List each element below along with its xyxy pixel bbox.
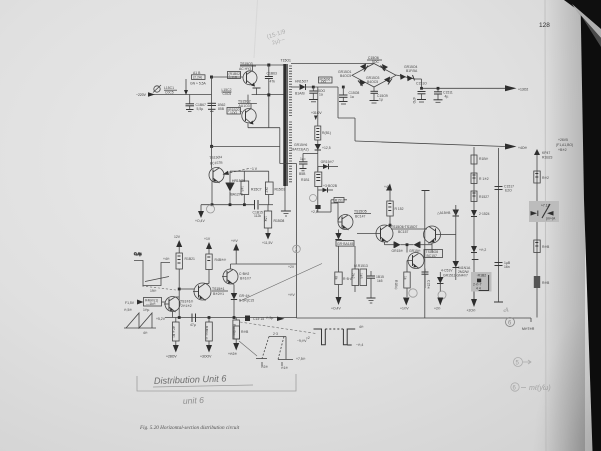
svg-text:C15℗: C15℗ — [427, 280, 431, 290]
svg-text:+2℗: +2℗ — [434, 307, 441, 311]
svg-text:R1B℗: R1B℗ — [394, 280, 398, 291]
svg-text:+1V: +1V — [204, 237, 211, 241]
svg-text:R1B1: R1B1 — [301, 178, 310, 182]
svg-text:L15C1: L15C1 — [164, 86, 174, 90]
svg-text:C·B℗2: C·B℗2 — [239, 272, 249, 276]
svg-text:L11B: L11B — [230, 75, 238, 79]
svg-text:+3OOV: +3OOV — [200, 355, 212, 359]
svg-text:TS1℗1℗: TS1℗1℗ — [180, 300, 194, 304]
svg-text:−9,℗V: −9,℗V — [297, 339, 307, 343]
svg-text:1OO: 1OO — [230, 111, 238, 115]
svg-text:MAT23(A2): MAT23(A2) — [292, 148, 309, 152]
svg-text:+13O2: +13O2 — [518, 88, 528, 92]
svg-text:R 152: R 152 — [395, 207, 404, 211]
svg-text:+28OV: +28OV — [166, 355, 177, 359]
svg-text:C0C5: C0C5 — [223, 92, 232, 96]
svg-text:AC HY3: AC HY3 — [239, 67, 251, 71]
svg-text:2M2/W: 2M2/W — [458, 270, 470, 274]
svg-text:+1℗V: +1℗V — [400, 307, 409, 311]
svg-text:TS15O5: TS15O5 — [354, 210, 367, 214]
svg-text:+3·BO2B: +3·BO2B — [323, 184, 338, 188]
svg-text:R4B℗℗: R4B℗℗ — [215, 258, 227, 262]
svg-text:8k: 8k — [334, 276, 338, 280]
svg-text:+5,2V: +5,2V — [156, 317, 166, 321]
svg-text:2k2: 2k2 — [351, 273, 355, 279]
svg-text:5,5µ: 5,5µ — [197, 107, 204, 111]
svg-text:+℗V: +℗V — [231, 239, 238, 243]
svg-text:B4OC5: B4OC5 — [367, 80, 378, 84]
svg-text:+O,4V: +O,4V — [331, 307, 341, 311]
svg-text:R1527: R1527 — [479, 195, 489, 199]
svg-text:R15O3: R15O3 — [275, 188, 286, 192]
svg-text:(F1,A1,BO): (F1,A1,BO) — [556, 143, 573, 147]
svg-text:BC147: BC147 — [355, 215, 365, 219]
svg-text:2·3: 2·3 — [273, 332, 278, 336]
svg-text:GR15℗: GR15℗ — [392, 249, 404, 253]
svg-text:1k: 1k — [403, 276, 407, 280]
svg-text:+12,5: +12,5 — [322, 146, 331, 150]
svg-text:O,4µ: O,4µ — [134, 252, 141, 256]
svg-text:+31OV: +31OV — [311, 111, 322, 115]
svg-text:19℗: 19℗ — [150, 289, 157, 293]
svg-text:4·C51V: 4·C51V — [441, 269, 453, 273]
svg-text:2℗1℗2: 2℗1℗2 — [181, 304, 192, 308]
svg-text:128: 128 — [539, 22, 550, 29]
svg-text:−℗,4: −℗,4 — [356, 343, 363, 347]
svg-text:+℗,2: +℗,2 — [479, 248, 486, 252]
svg-text:5OC: 5OC — [372, 60, 380, 64]
svg-text:16n: 16n — [504, 265, 510, 269]
svg-text:+B℗2: +B℗2 — [558, 148, 567, 152]
svg-text:47µ: 47µ — [190, 323, 196, 327]
svg-text:4 4: 4 4 — [476, 287, 481, 291]
svg-text:1k5: 1k5 — [377, 279, 383, 283]
svg-text:R℗B: R℗B — [542, 281, 550, 285]
svg-text:B4OC5: B4OC5 — [340, 74, 351, 78]
svg-text:1k5: 1k5 — [240, 186, 244, 192]
svg-text:C151O: C151O — [416, 82, 427, 86]
svg-text:GN ≈ 5,5A: GN ≈ 5,5A — [190, 82, 207, 86]
svg-text:A1 B: A1 B — [193, 71, 201, 75]
svg-text:4µ: 4µ — [445, 95, 449, 99]
svg-text:M℗T℗R: M℗T℗R — [522, 327, 535, 331]
svg-text:℗,5µ: ℗,5µ — [266, 316, 273, 320]
svg-text:4℗: 4℗ — [359, 325, 364, 329]
svg-text:+2O℗: +2O℗ — [467, 309, 477, 313]
svg-text:C14·15: C14·15 — [253, 317, 264, 321]
svg-text:47k: 47k — [270, 80, 276, 84]
svg-text:+O,4V: +O,4V — [195, 219, 205, 223]
svg-text:B℗2℗1: B℗2℗1 — [213, 292, 224, 296]
svg-text:47O: 47O — [412, 97, 416, 104]
svg-text:△A15℗B: △A15℗B — [437, 211, 451, 215]
svg-text:−1 V: −1 V — [250, 167, 258, 171]
svg-text:F1,5V: F1,5V — [125, 301, 135, 305]
svg-text:KP47: KP47 — [542, 151, 550, 155]
svg-text:+2V: +2V — [288, 265, 295, 269]
svg-text:mℓ(ƴω): mℓ(ƴω) — [529, 385, 551, 392]
svg-text:+℗V: +℗V — [288, 293, 295, 297]
svg-text:TS15O6·TS15O7: TS15O6·TS15O7 — [391, 225, 417, 229]
svg-text:1µ: 1µ — [379, 98, 383, 102]
svg-text:1a: 1a — [350, 95, 354, 99]
svg-text:R(B1): R(B1) — [322, 131, 331, 135]
svg-text:2k2: 2k2 — [264, 187, 268, 193]
svg-text:15k: 15k — [263, 216, 267, 222]
svg-text:GR·BA145: GR·BA145 — [337, 242, 354, 246]
svg-text:BC157: BC157 — [427, 254, 437, 258]
svg-text:M.R1513: M.R1513 — [354, 264, 368, 268]
svg-text:R15C7: R15C7 — [251, 188, 262, 192]
svg-text:1a: 1a — [319, 93, 323, 97]
svg-text:R 1℗2: R 1℗2 — [479, 177, 489, 181]
svg-text:GR1511·GN4℗7: GR1511·GN4℗7 — [443, 274, 468, 278]
svg-text:R℗B: R℗B — [542, 245, 550, 249]
svg-text:GR15℗7: GR15℗7 — [321, 160, 334, 164]
svg-text:2: 2 — [295, 248, 298, 254]
svg-text:C1B63: C1B63 — [267, 72, 277, 76]
svg-text:R15O8: R15O8 — [274, 219, 285, 223]
svg-text:1℗µ: 1℗µ — [143, 308, 149, 312]
svg-text:·R1B2: ·R1B2 — [477, 274, 487, 278]
svg-text:HN15O7: HN15O7 — [295, 80, 308, 84]
svg-text:4℗: 4℗ — [143, 331, 148, 335]
svg-text:R1517: R1517 — [335, 198, 345, 202]
svg-text:R1B21: R1B21 — [185, 257, 195, 261]
svg-text:R1B23: R1B23 — [542, 156, 552, 160]
svg-text:B℗1℗7: B℗1℗7 — [240, 277, 251, 281]
svg-text:T15O1: T15O1 — [281, 59, 291, 63]
svg-text:℗,5℗: ℗,5℗ — [124, 308, 132, 312]
svg-text:+℗2℗: +℗2℗ — [228, 352, 237, 356]
svg-text:R1B℗: R1B℗ — [479, 157, 489, 161]
svg-text:unit 6: unit 6 — [183, 395, 205, 406]
svg-text:85B: 85B — [218, 107, 225, 111]
svg-text:~220V: ~220V — [136, 93, 147, 97]
svg-text:Fig. 5.20 Horizontal-section: Fig. 5.20 Horizontal-section distributio… — [139, 425, 240, 431]
svg-text:(m≈)A: (m≈)A — [546, 217, 556, 221]
svg-text:B5B: B5B — [299, 172, 306, 176]
svg-text:(2,2A): (2,2A) — [193, 76, 202, 80]
svg-text:47℗B1: 47℗B1 — [172, 326, 176, 338]
svg-text:R4B℗℗: R4B℗℗ — [205, 326, 209, 341]
svg-text:B1A/B: B1A/B — [295, 92, 305, 96]
svg-text:℗1℗: ℗1℗ — [281, 366, 288, 370]
svg-text:ΩΩ: ΩΩ — [321, 80, 327, 84]
svg-text:+7,5℗: +7,5℗ — [296, 357, 306, 361]
svg-text:≈2: ≈2 — [306, 336, 310, 340]
svg-text:+11,5V: +11,5V — [262, 241, 273, 245]
svg-text:TS15℗1: TS15℗1 — [212, 287, 225, 291]
svg-text:2·1524: 2·1524 — [479, 212, 490, 216]
svg-text:E2O: E2O — [505, 189, 512, 193]
svg-text:R℗B: R℗B — [241, 330, 249, 334]
svg-text:GR15℗6: GR15℗6 — [294, 143, 307, 147]
svg-text:1k5: 1k5 — [359, 273, 363, 279]
svg-text:—1k℗: —1k℗ — [146, 302, 156, 306]
svg-text:R℗2: R℗2 — [542, 176, 549, 180]
svg-text:BC157: BC157 — [398, 230, 408, 234]
svg-text:+26V5: +26V5 — [558, 138, 568, 142]
svg-text:12V: 12V — [174, 235, 181, 239]
svg-text:TS15O2: TS15O2 — [238, 100, 251, 104]
svg-text:+4℗: +4℗ — [163, 257, 170, 261]
svg-text:112k: 112k — [254, 214, 261, 218]
svg-text:B1F/5A: B1F/5A — [406, 69, 418, 73]
svg-text:C0C5: C0C5 — [165, 91, 174, 95]
svg-text:+4O℗: +4O℗ — [518, 146, 528, 150]
svg-text:℗2℗: ℗2℗ — [261, 365, 268, 369]
